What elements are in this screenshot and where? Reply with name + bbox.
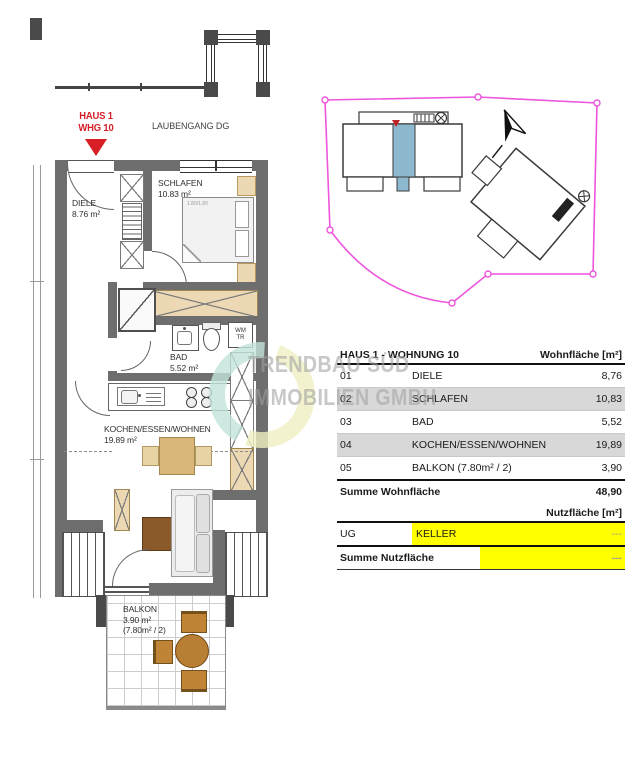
window-bay-right <box>225 532 268 597</box>
area-table-unit-header: Wohnfläche [m²] <box>540 349 625 361</box>
table-row: UG KELLER --- <box>337 523 625 547</box>
floorplan-sheet: HAUS 1 WHG 10 LAUBENGANG DG DIELE 8.76 m… <box>0 0 642 757</box>
wall-post <box>256 30 270 45</box>
window-bay-left <box>62 532 105 597</box>
row-number: 03 <box>337 416 412 428</box>
room-area: 5.52 m² <box>170 363 198 374</box>
room-name: SCHLAFEN <box>158 178 203 189</box>
room-label-diele: DIELE 8.76 m² <box>72 198 100 219</box>
roof-edge-tick <box>30 281 44 282</box>
pillow <box>235 201 249 228</box>
total-label: Summe Nutzfläche <box>337 552 480 564</box>
sofa-seat <box>175 495 195 572</box>
room-name: BALKON <box>123 604 166 615</box>
room-area: 8.76 m² <box>72 209 100 220</box>
sofa <box>171 489 213 577</box>
table-row: 05 BALKON (7.80m² / 2) 3,90 <box>337 457 625 479</box>
wardrobe-x <box>120 174 144 202</box>
total-value: 48,90 <box>546 486 625 498</box>
sofa-cushion <box>196 494 210 533</box>
wall-cap-left <box>55 520 103 532</box>
balcony-chair <box>181 611 207 633</box>
siteplan-building-1 <box>343 112 462 191</box>
siteplan-building-2 <box>443 127 593 276</box>
railing-tick <box>88 83 90 91</box>
sink <box>172 325 199 351</box>
room-area-note: (7.80m² / 2) <box>123 625 166 636</box>
balcony: BALKON 3.90 m² (7.80m² / 2) <box>106 595 226 710</box>
utility-table-header: Nutzfläche [m²] <box>337 503 625 523</box>
wall-bedroom-bottom <box>143 282 268 290</box>
kitchen-tap <box>138 394 141 397</box>
unit-marker-line1: HAUS 1 <box>71 111 121 123</box>
room-area: 3.90 m² <box>123 615 166 626</box>
dining-table <box>159 437 195 475</box>
sink-tap <box>183 327 186 330</box>
unit-marker-arrow-icon <box>85 139 107 156</box>
bed: 1.80/1.80 <box>182 197 254 263</box>
window <box>206 45 215 82</box>
balcony-table <box>175 634 209 668</box>
wall-post <box>204 30 218 45</box>
bath-door <box>121 341 151 371</box>
duvet-fold <box>183 244 201 262</box>
balcony-chair <box>181 670 207 692</box>
window <box>258 45 267 82</box>
kitchen-sink-basin <box>121 390 138 404</box>
row-value: 10,83 <box>546 393 625 405</box>
utility-table-total: Summe Nutzfläche --- <box>337 547 625 570</box>
room-name: BAD <box>170 352 198 363</box>
total-value: --- <box>480 547 625 569</box>
row-value: 19,89 <box>546 439 625 451</box>
bed-size-label: 1.80/1.80 <box>187 201 208 207</box>
coffee-table <box>142 517 172 551</box>
row-number: UG <box>337 528 412 540</box>
roof-edge <box>33 165 34 598</box>
chair <box>142 446 159 466</box>
window-tick <box>215 160 217 171</box>
area-table-total: Summe Wohnfläche 48,90 <box>337 479 625 502</box>
radiator <box>122 203 142 240</box>
utility-table: Nutzfläche [m²] UG KELLER --- Summe Nutz… <box>337 503 625 570</box>
railing <box>55 86 207 89</box>
pillow <box>235 230 249 257</box>
unit-marker-line2: WHG 10 <box>71 123 121 135</box>
roof-edge-tick <box>30 459 44 460</box>
corridor-label: LAUBENGANG DG <box>152 121 229 132</box>
wall-post <box>204 82 218 97</box>
balcony-chair <box>153 640 173 664</box>
balcony-door <box>112 549 149 586</box>
sink-basin <box>177 331 192 345</box>
total-label: Summe Wohnfläche <box>337 486 546 498</box>
roof-slope-dashed <box>64 451 112 452</box>
utility-unit-header: Nutzfläche [m²] <box>546 507 625 519</box>
kneewall-storage-x <box>152 290 258 318</box>
north-arrow-icon <box>477 106 529 158</box>
wall-post <box>256 82 270 97</box>
room-label-bad: BAD 5.52 m² <box>170 352 198 373</box>
living-door <box>75 381 110 416</box>
row-room: BALKON (7.80m² / 2) <box>412 462 546 474</box>
drainboard <box>146 390 161 402</box>
row-value: 8,76 <box>546 370 625 382</box>
shower <box>118 288 156 332</box>
balcony-side-stub <box>96 595 106 627</box>
row-room: BAD <box>412 416 546 428</box>
window <box>218 34 256 43</box>
nightstand <box>237 263 256 283</box>
burner <box>186 397 197 408</box>
keller-label: KELLER <box>412 528 456 540</box>
row-value: 3,90 <box>546 462 625 474</box>
row-room: KOCHEN/ESSEN/WOHNEN <box>412 439 546 451</box>
room-name: DIELE <box>72 198 100 209</box>
room-label-balkon: BALKON 3.90 m² (7.80m² / 2) <box>123 604 166 636</box>
kitchen-sink-unit <box>117 387 165 406</box>
sideboard-x <box>114 489 130 531</box>
row-value: --- <box>546 523 625 545</box>
wall-bottom <box>149 583 225 595</box>
table-row: 04 KOCHEN/ESSEN/WOHNEN 19,89 <box>337 434 625 457</box>
row-room: DIELE <box>412 370 546 382</box>
row-number: 04 <box>337 439 412 451</box>
nightstand <box>237 176 256 196</box>
sofa-cushion <box>196 534 210 573</box>
balcony-door-threshold <box>105 586 149 588</box>
wall-diele-schlafen <box>143 171 152 251</box>
balcony-door-threshold <box>105 591 149 593</box>
watermark-line1: TRENDBAU SÜD <box>248 351 410 378</box>
watermark-line2: IMMOBILIEN GMBH <box>248 384 437 411</box>
row-room: KELLER <box>412 523 546 545</box>
row-value: 5,52 <box>546 416 625 428</box>
table-row: 03 BAD 5,52 <box>337 411 625 434</box>
unit-marker: HAUS 1 WHG 10 <box>71 111 121 134</box>
bath-door-opening <box>108 338 117 371</box>
railing-tick <box>140 83 142 91</box>
wall-cap-right <box>213 490 268 500</box>
room-name: KOCHEN/ESSEN/WOHNEN <box>104 424 211 435</box>
wardrobe-x <box>120 241 144 269</box>
row-number: 05 <box>337 462 412 474</box>
roof-edge <box>40 165 41 598</box>
site-plan <box>318 86 618 318</box>
wall-stub <box>30 18 42 40</box>
